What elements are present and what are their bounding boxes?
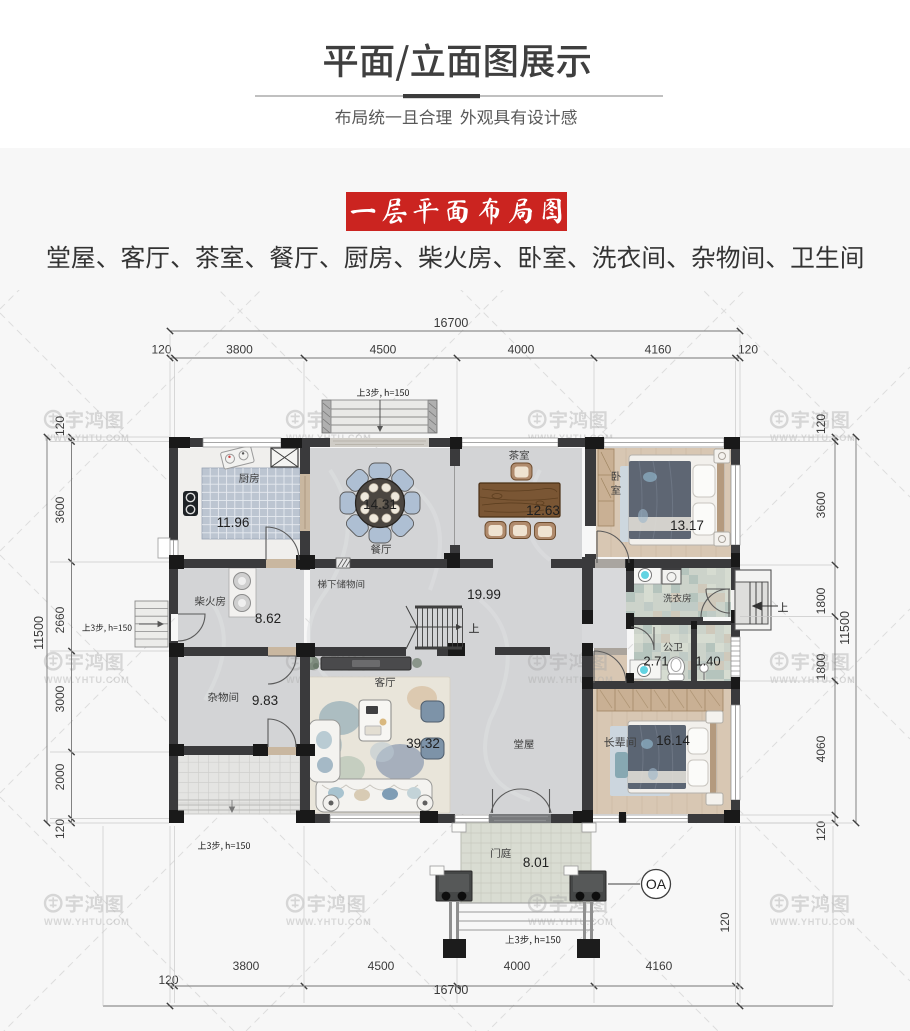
svg-text:4000: 4000: [504, 959, 531, 973]
svg-text:3000: 3000: [53, 685, 67, 712]
svg-text:2.71: 2.71: [643, 654, 668, 669]
svg-text:2000: 2000: [53, 763, 67, 790]
svg-text:11500: 11500: [32, 616, 46, 650]
svg-text:8.62: 8.62: [255, 611, 281, 626]
svg-text:39.32: 39.32: [406, 736, 440, 751]
svg-text:120: 120: [53, 819, 67, 839]
svg-text:3600: 3600: [53, 496, 67, 523]
svg-text:120: 120: [814, 414, 828, 434]
svg-text:2660: 2660: [53, 606, 67, 633]
svg-text:4000: 4000: [508, 343, 535, 357]
svg-text:1.40: 1.40: [695, 654, 720, 669]
svg-text:120: 120: [158, 973, 178, 987]
svg-text:4500: 4500: [370, 343, 397, 357]
svg-text:120: 120: [738, 343, 758, 357]
svg-text:4160: 4160: [646, 959, 673, 973]
svg-text:11500: 11500: [838, 611, 852, 645]
svg-text:120: 120: [718, 912, 732, 932]
svg-text:120: 120: [814, 821, 828, 841]
svg-text:120: 120: [151, 343, 171, 357]
svg-text:1800: 1800: [814, 587, 828, 614]
svg-text:4500: 4500: [368, 959, 395, 973]
svg-text:16700: 16700: [434, 983, 469, 997]
svg-text:3600: 3600: [814, 491, 828, 518]
svg-text:3800: 3800: [233, 959, 260, 973]
svg-text:4060: 4060: [814, 735, 828, 762]
svg-text:9.83: 9.83: [252, 693, 278, 708]
svg-text:16.14: 16.14: [656, 733, 690, 748]
svg-text:12.63: 12.63: [526, 503, 560, 518]
svg-text:OA: OA: [646, 876, 667, 892]
svg-text:4160: 4160: [645, 343, 672, 357]
svg-text:19.99: 19.99: [467, 587, 501, 602]
svg-text:11.96: 11.96: [217, 515, 250, 530]
svg-text:120: 120: [53, 416, 67, 436]
svg-text:16700: 16700: [434, 316, 469, 330]
svg-text:13.17: 13.17: [670, 518, 704, 533]
svg-text:3800: 3800: [226, 343, 253, 357]
svg-text:14.31: 14.31: [363, 497, 397, 512]
svg-text:1800: 1800: [814, 653, 828, 680]
svg-text:8.01: 8.01: [523, 855, 549, 870]
